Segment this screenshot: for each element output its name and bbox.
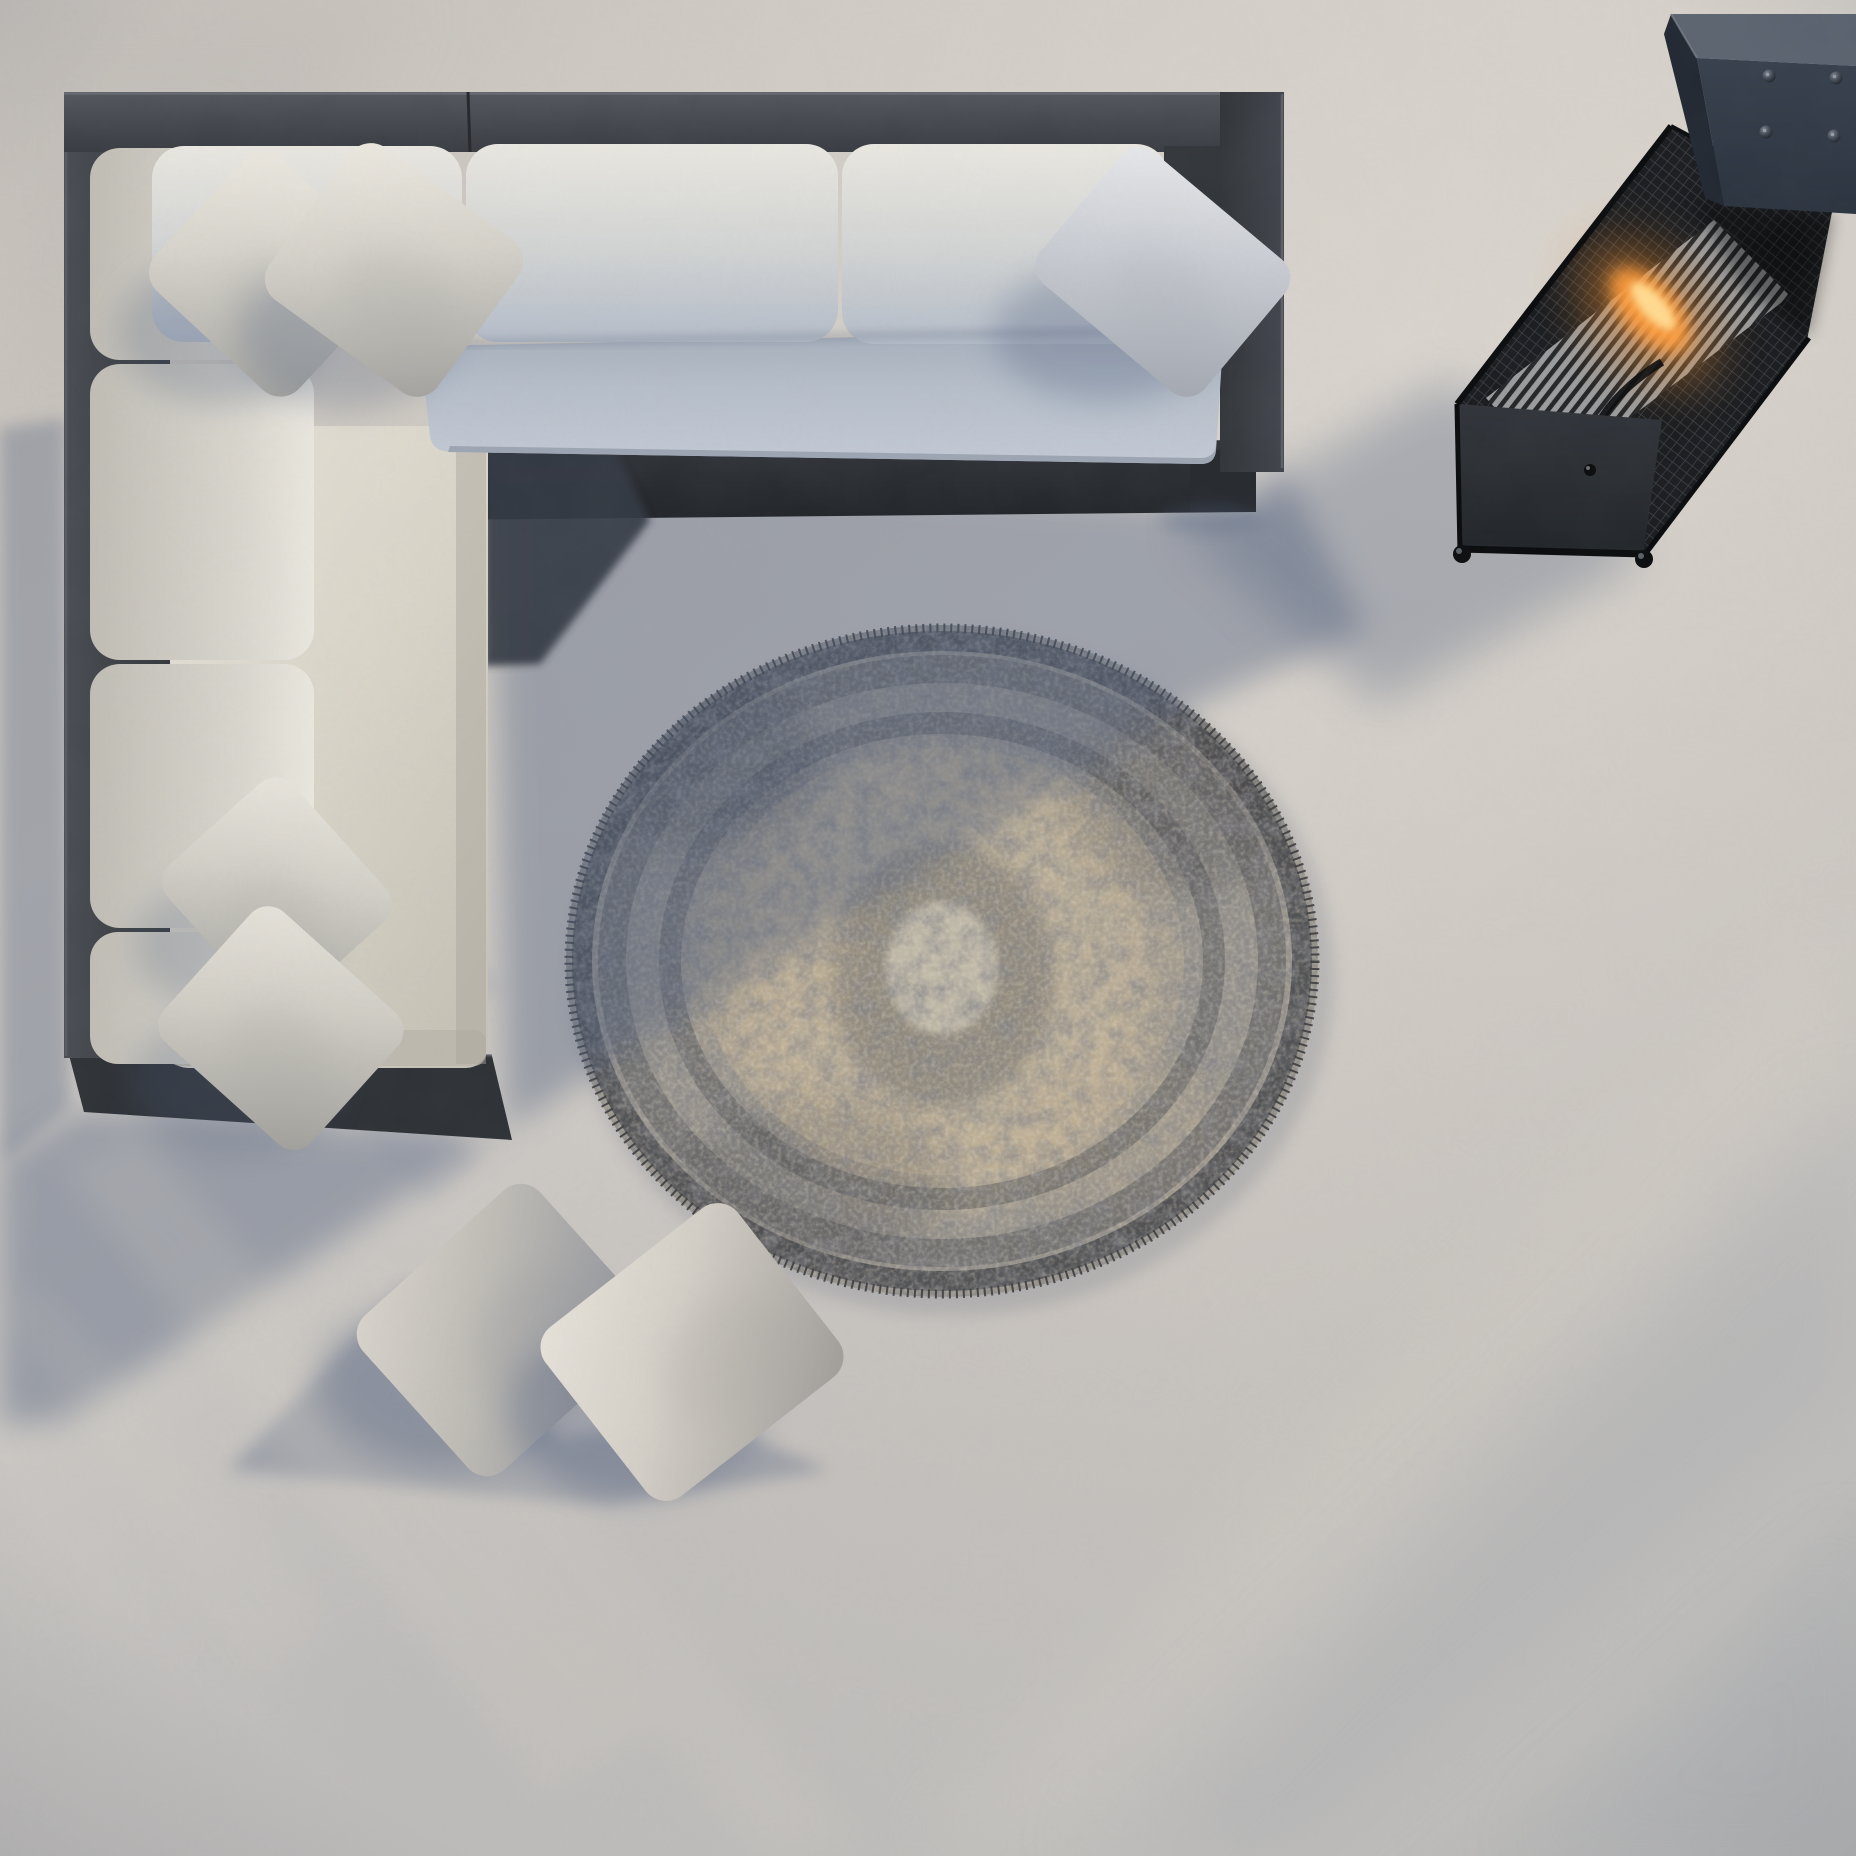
patio-render (0, 0, 1856, 1856)
vignette (0, 0, 1856, 1856)
patio-scene (0, 0, 1856, 1856)
